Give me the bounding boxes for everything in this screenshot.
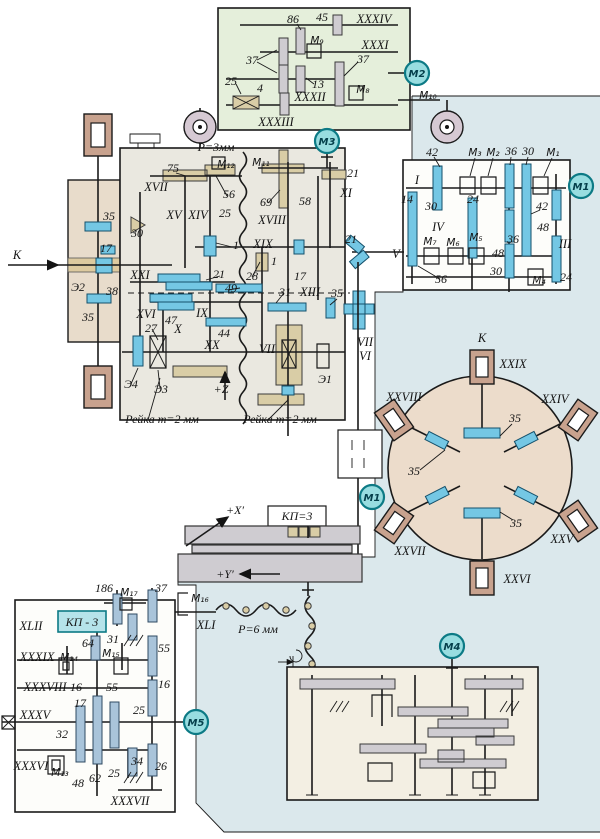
right-pulley-center [445,125,449,129]
label-64: 64 [82,636,94,650]
clutch-m15: М₁₅ [102,648,119,660]
shaft-xxxiv: XXXIV [356,12,393,26]
reduction-gearbox [287,658,538,800]
label-48b: 48 [492,246,504,260]
label-16b: 16 [158,677,170,691]
chain-link [243,607,249,613]
label-30m: 30 [130,226,143,240]
label-13: 13 [312,77,324,91]
label-24a: 24 [467,192,479,206]
label-17c: 17 [74,696,87,710]
chain-link [283,607,289,613]
shaft-vi-tag: VI [359,349,372,363]
shaft-iii: III [558,237,572,251]
label-86: 86 [287,12,299,26]
clutch-m8: М₈ [356,84,370,96]
label-45: 45 [316,10,328,24]
label-1a: 1 [233,238,239,252]
label-35d2: 35 [407,464,420,478]
label-62: 62 [89,771,101,785]
shaft-xxxv: XXXV [19,708,52,722]
shaft-i: I [414,173,420,187]
shaft-xxxi: XXXI [360,38,389,52]
label-25d: 25 [133,703,145,717]
motor-m1-mid-label: М1 [364,493,381,504]
shaft-ix: IX [195,306,209,320]
label-21v: 21 [345,232,357,246]
label-rack2: Рейка m=2 мм [242,412,317,426]
label-37a: 37 [245,53,259,67]
vi-coupling-box [338,430,382,478]
label-21xxi: 21 [213,267,225,281]
label-56: 56 [223,187,235,201]
label-p3: Р=3мм [197,140,235,154]
shaft-xvii: XVII [143,180,168,194]
clutch-e1: Э1 [318,372,332,386]
label-k-drum: K [477,331,487,345]
clutch-m6: М₆ [446,237,459,249]
shaft-xix: XIX [252,237,274,251]
label-42b: 42 [536,199,548,213]
spindle-xxix: XXIX [498,357,527,371]
bevel-gear-21b [350,250,370,268]
label-30t: 30 [521,144,534,158]
shaft-xxxii: XXXII [293,90,326,104]
left-pulley-center [198,125,202,129]
clutch-m13: М₁₃ [51,767,68,779]
label-36b: 36 [506,232,519,246]
clutch-e3: Э3 [154,382,168,396]
spindle-frame-bottom-inner [476,568,488,588]
label-16a: 16 [70,680,82,694]
shaft-xxxiii: XXXIII [257,115,294,129]
shaft-xx: XX [203,338,221,352]
clutch-m14: М₁₄ [60,652,78,664]
feed-gearbox-housing [218,8,410,130]
shaft-xiii: XIII [299,285,321,299]
chain-link [305,603,311,609]
shaft-v: V [392,247,401,261]
shaft-xxxix: XXXIX [19,650,56,664]
spindle-xxvii: XXVII [393,544,426,558]
clutch-m2: М₂ [486,147,500,159]
label-25: 25 [225,74,237,88]
label-186: 186 [95,581,113,595]
frame-top-inner [91,123,105,147]
label-48a: 48 [537,220,549,234]
clutch-m3: М₃ [468,147,481,159]
label-35vi: 35 [330,286,343,300]
bottom-left-gearbox: 186 М₁₇ 37 XLII КП - 3 64 31 М₁₄ М₁₅ 55 … [2,581,184,812]
label-24b: 24 [560,270,572,284]
label-17l: 17 [100,241,113,255]
label-42t: 42 [426,145,438,159]
table-mini-gears [288,527,320,537]
shaft-vii-tag: VII [357,335,374,349]
shaft-xxxviii: XXXVIII [22,680,67,694]
shaft-xiv: XIV [187,208,209,222]
label-58: 58 [299,194,311,208]
label-38: 38 [105,284,118,298]
motor-m3-label: М3 [319,137,336,148]
spindle-xxv: XXV [550,532,575,546]
label-55a: 55 [158,641,170,655]
kinematic-diagram: 86 45 XXXIV М₉ XXXI 37 37 25 4 13 XXXII … [0,0,600,839]
spindle-xxvi: XXVI [502,572,531,586]
label-35l2: 35 [81,310,94,324]
shaft-vii: VII [259,342,276,356]
shaft-xv: XV [165,208,183,222]
shaft-x: X [173,322,183,336]
shaft-iv: IV [431,220,445,234]
spindle-xxiv: XXIV [540,392,569,406]
label-37c: 37 [154,581,168,595]
shaft-xi: XI [339,186,353,200]
label-30b: 30 [424,199,437,213]
label-34: 34 [130,754,143,768]
shaft-xlii: XLII [19,619,44,633]
speed-gearbox: 42 М₃ М₂ 36 30 М₁ I 14 30 24 42 IV 48 М₇… [345,144,572,292]
motor-m4-label: М4 [444,642,461,653]
label-55b: 55 [106,680,118,694]
label-17m: 17 [294,269,307,283]
label-4: 4 [257,81,263,95]
label-plus-x: +X′ [226,503,244,517]
clutch-m12: М₁₂ [217,159,235,171]
label-44: 44 [218,326,230,340]
clutch-m11: М₁₁ [252,157,269,169]
clutch-m10: М₁₀ [419,90,437,102]
chain-link [309,623,315,629]
spindle-frame-top-inner [476,357,488,377]
label-69: 69 [260,195,272,209]
shaft-xxxvi: XXXVI [13,759,50,773]
label-75: 75 [167,161,179,175]
motor-m2-label: М2 [409,69,426,80]
label-p6: Р=6 мм [237,622,278,636]
label-35d3: 35 [509,516,522,530]
label-kp3: КП=3 [281,509,313,523]
label-35d1: 35 [508,411,521,425]
clutch-m16: М₁₆ [191,593,208,605]
shaft-xvi: XVI [135,307,156,321]
label-49: 49 [225,281,237,295]
label-14: 14 [401,192,413,206]
chain-link [305,643,311,649]
label-21xi: 21 [347,166,359,180]
shaft-xxi: XXI [129,268,150,282]
label-32: 32 [55,727,68,741]
label-kp3-box: КП - 3 [65,615,99,629]
label-25m: 25 [219,206,231,220]
label-1b: 1 [271,254,277,268]
label-25c: 25 [108,766,120,780]
clutch-m4: М₄ [532,275,546,287]
motor-m5-label: М5 [188,718,205,729]
motor-m1-top-label: М1 [573,182,590,193]
chain-link [223,603,229,609]
label-31: 31 [278,285,291,299]
clutch-e4: Э4 [124,377,138,391]
clutch-e2: Э2 [71,280,85,294]
clutch-m9: М₉ [310,35,324,47]
spindle-xxviii: XXVIII [385,390,422,404]
clutch-m1: М₁ [546,147,559,159]
label-36t: 36 [504,144,517,158]
clutch-m5: М₅ [469,232,482,244]
label-48c: 48 [72,776,84,790]
clutch-m7: М₇ [423,236,437,248]
label-k-input: K [12,248,22,262]
shaft-xviii: XVIII [257,213,287,227]
label-26: 26 [155,759,167,773]
label-plus-y: +Y′ [216,567,234,581]
label-37b: 37 [356,52,370,66]
frame-bottom-inner [91,375,105,399]
table-slide-mid [192,545,352,553]
left-column: K 35 17 Э2 38 35 [8,114,120,408]
chain-link [263,603,269,609]
table-slide-bottom [178,554,362,582]
label-31b: 31 [106,632,119,646]
label-27: 27 [145,321,158,335]
shaft-xxxvii: XXXVII [110,794,151,808]
label-35l1: 35 [102,209,115,223]
label-plus-z: +Z [214,382,229,396]
clutch-m17: М₁₇ [120,587,138,599]
label-rack1: Рейка m=2 мм [124,412,199,426]
label-56b: 56 [435,272,447,286]
shaft-xli: XLI [196,618,217,632]
label-30c: 30 [489,264,502,278]
label-28: 28 [246,269,258,283]
